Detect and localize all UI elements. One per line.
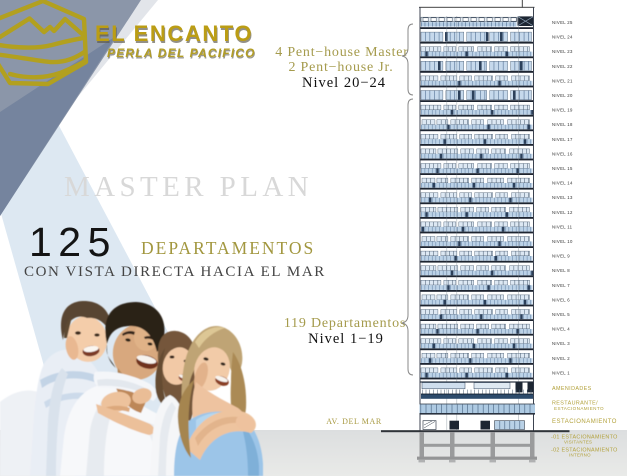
svg-text:ESTACIONAMIENTO: ESTACIONAMIENTO (554, 406, 604, 411)
svg-text:NIVEL 12: NIVEL 12 (552, 210, 573, 215)
svg-text:NIVEL 20: NIVEL 20 (552, 93, 573, 98)
svg-text:Nivel 1−19: Nivel 1−19 (308, 331, 384, 347)
svg-text:ESTACIONAMIENTO: ESTACIONAMIENTO (552, 419, 617, 425)
svg-text:NIVEL 14: NIVEL 14 (552, 181, 573, 186)
svg-text:NIVEL 22: NIVEL 22 (552, 64, 573, 69)
svg-text:NIVEL 6: NIVEL 6 (552, 297, 570, 302)
svg-text:NIVEL 8: NIVEL 8 (552, 268, 570, 273)
svg-text:DEPARTAMENTOS: DEPARTAMENTOS (141, 238, 315, 258)
svg-text:NIVEL 21: NIVEL 21 (552, 78, 573, 83)
svg-text:NIVEL 10: NIVEL 10 (552, 239, 573, 244)
svg-text:CON VISTA DIRECTA HACIA EL MAR: CON VISTA DIRECTA HACIA EL MAR (24, 264, 326, 280)
svg-text:NIVEL 15: NIVEL 15 (552, 166, 573, 171)
svg-text:MASTER PLAN: MASTER PLAN (64, 171, 313, 203)
svg-text:AMENIDADES: AMENIDADES (552, 386, 592, 392)
svg-text:NIVEL 24: NIVEL 24 (552, 35, 573, 40)
svg-text:NIVEL 18: NIVEL 18 (552, 122, 573, 127)
svg-text:NIVEL 17: NIVEL 17 (552, 137, 573, 142)
svg-text:NIVEL 3: NIVEL 3 (552, 341, 570, 346)
svg-text:NIVEL 19: NIVEL 19 (552, 108, 573, 113)
svg-text:NIVEL 4: NIVEL 4 (552, 327, 570, 332)
svg-text:NIVEL 2: NIVEL 2 (552, 356, 570, 361)
svg-text:Nivel 20−24: Nivel 20−24 (302, 75, 386, 91)
svg-text:4 Pent−house Master: 4 Pent−house Master (275, 45, 409, 60)
svg-text:NIVEL 23: NIVEL 23 (552, 49, 573, 54)
svg-text:NIVEL 5: NIVEL 5 (552, 312, 570, 317)
svg-text:NIVEL 25: NIVEL 25 (552, 20, 573, 25)
svg-text:2 Pent−house Jr.: 2 Pent−house Jr. (288, 60, 393, 75)
svg-text:NIVEL 1: NIVEL 1 (552, 370, 570, 375)
svg-text:PERLA DEL PACIFICO: PERLA DEL PACIFICO (107, 46, 256, 60)
svg-text:NIVEL 7: NIVEL 7 (552, 283, 570, 288)
svg-text:NIVEL 11: NIVEL 11 (552, 224, 573, 229)
svg-text:119 Departamentos: 119 Departamentos (284, 316, 406, 331)
svg-text:NIVEL 9: NIVEL 9 (552, 254, 570, 259)
svg-text:NIVEL 16: NIVEL 16 (552, 151, 573, 156)
svg-text:NIVEL 13: NIVEL 13 (552, 195, 573, 200)
svg-text:125: 125 (29, 219, 117, 265)
svg-text:AV. DEL MAR: AV. DEL MAR (326, 417, 382, 426)
svg-text:INTERNO: INTERNO (569, 453, 591, 458)
svg-text:VISITANTES: VISITANTES (564, 440, 592, 445)
svg-text:EL ENCANTO: EL ENCANTO (95, 21, 253, 46)
